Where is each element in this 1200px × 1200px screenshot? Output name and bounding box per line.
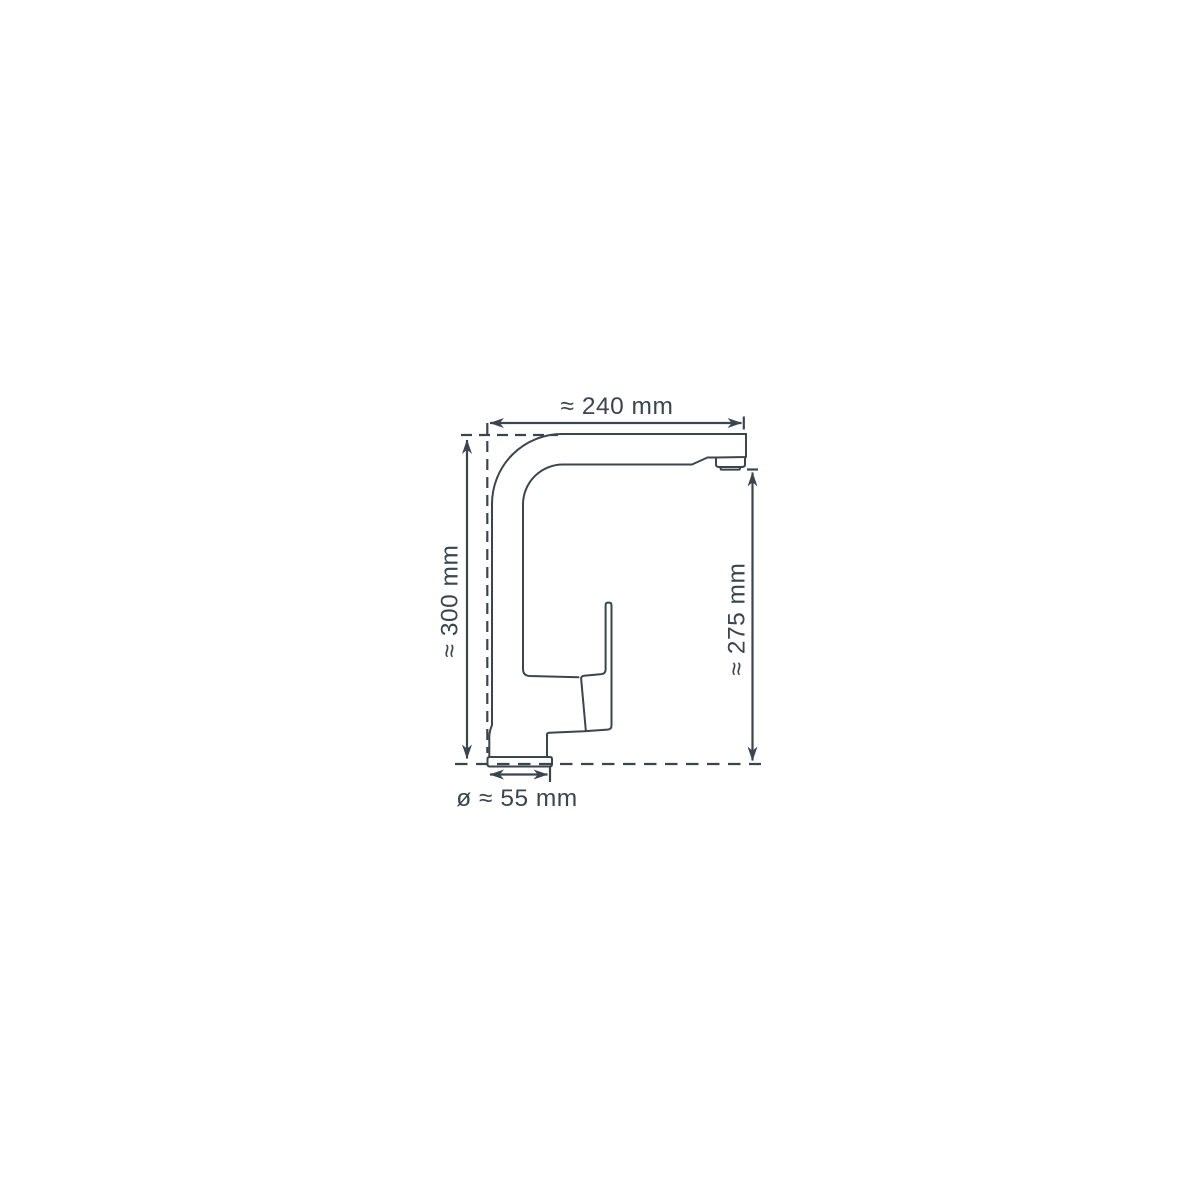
faucet-handle-outline (547, 603, 612, 757)
reference-lines (455, 423, 761, 764)
total-height-dimension-label: ≈ 300 mm (437, 545, 464, 658)
page: ≈ 240 mm ≈ 300 mm ≈ 275 mm ø ≈ 55 mm (0, 0, 1200, 1200)
width-dimension-label: ≈ 240 mm (561, 393, 674, 420)
faucet-spout-outer-outline (489, 434, 746, 757)
faucet-spout-inner-outline (523, 434, 746, 677)
faucet-aerator (716, 458, 745, 468)
faucet-drawing (488, 434, 747, 767)
base-diameter-dimension-label: ø ≈ 55 mm (456, 785, 577, 812)
dimension-lines (467, 417, 758, 783)
faucet-dimension-diagram: ≈ 240 mm ≈ 300 mm ≈ 275 mm ø ≈ 55 mm (0, 0, 1200, 1200)
dimension-labels: ≈ 240 mm ≈ 300 mm ≈ 275 mm ø ≈ 55 mm (437, 393, 751, 812)
spout-height-dimension-label: ≈ 275 mm (724, 563, 751, 676)
